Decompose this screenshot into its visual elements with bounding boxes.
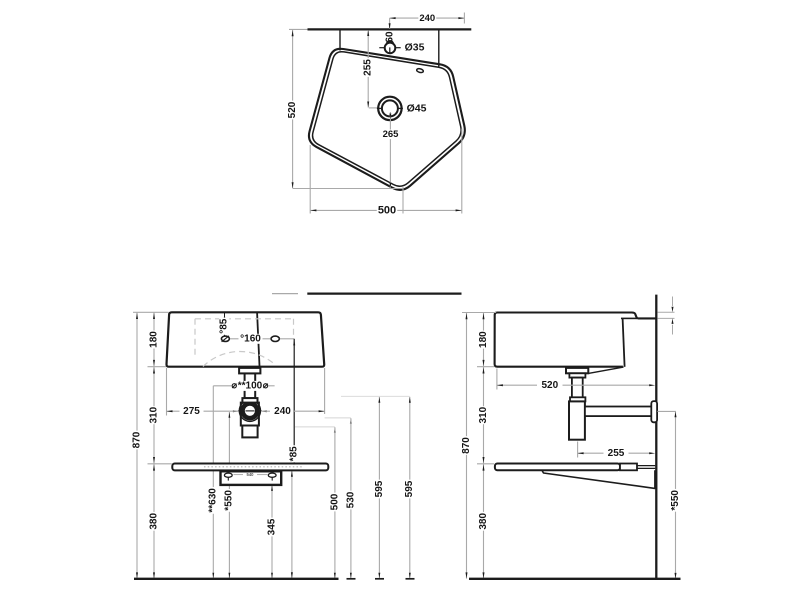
svg-text:**100: **100 bbox=[238, 380, 263, 391]
svg-text:265: 265 bbox=[383, 129, 400, 140]
svg-text:540: 540 bbox=[247, 472, 255, 477]
svg-text:Ø35: Ø35 bbox=[405, 42, 425, 54]
svg-text:310: 310 bbox=[478, 406, 489, 423]
svg-text:520: 520 bbox=[287, 101, 298, 118]
svg-text:380: 380 bbox=[478, 513, 489, 530]
svg-text:180: 180 bbox=[149, 331, 160, 348]
svg-text:°85: °85 bbox=[219, 318, 230, 334]
svg-text:870: 870 bbox=[132, 431, 143, 448]
svg-text:255: 255 bbox=[363, 59, 374, 76]
svg-text:870: 870 bbox=[461, 437, 472, 454]
svg-text:520: 520 bbox=[541, 380, 558, 391]
svg-text:Ø45: Ø45 bbox=[407, 102, 427, 114]
svg-text:*550: *550 bbox=[670, 490, 681, 511]
svg-text:530: 530 bbox=[345, 491, 356, 508]
svg-text:°160: °160 bbox=[240, 333, 261, 344]
svg-text:500: 500 bbox=[378, 205, 396, 217]
svg-text:*85: *85 bbox=[289, 446, 300, 461]
svg-text:240: 240 bbox=[274, 406, 291, 417]
svg-text:240: 240 bbox=[419, 13, 435, 24]
svg-text:380: 380 bbox=[149, 513, 160, 530]
svg-text:255: 255 bbox=[608, 448, 625, 459]
svg-text:500: 500 bbox=[329, 493, 340, 510]
svg-text:595: 595 bbox=[374, 480, 385, 497]
svg-text:310: 310 bbox=[149, 406, 160, 423]
svg-text:**630: **630 bbox=[208, 488, 219, 513]
svg-text:275: 275 bbox=[183, 406, 200, 417]
svg-text:180: 180 bbox=[478, 331, 489, 348]
svg-text:595: 595 bbox=[404, 480, 415, 497]
svg-text:345: 345 bbox=[266, 518, 277, 535]
svg-text:*550: *550 bbox=[224, 490, 235, 511]
